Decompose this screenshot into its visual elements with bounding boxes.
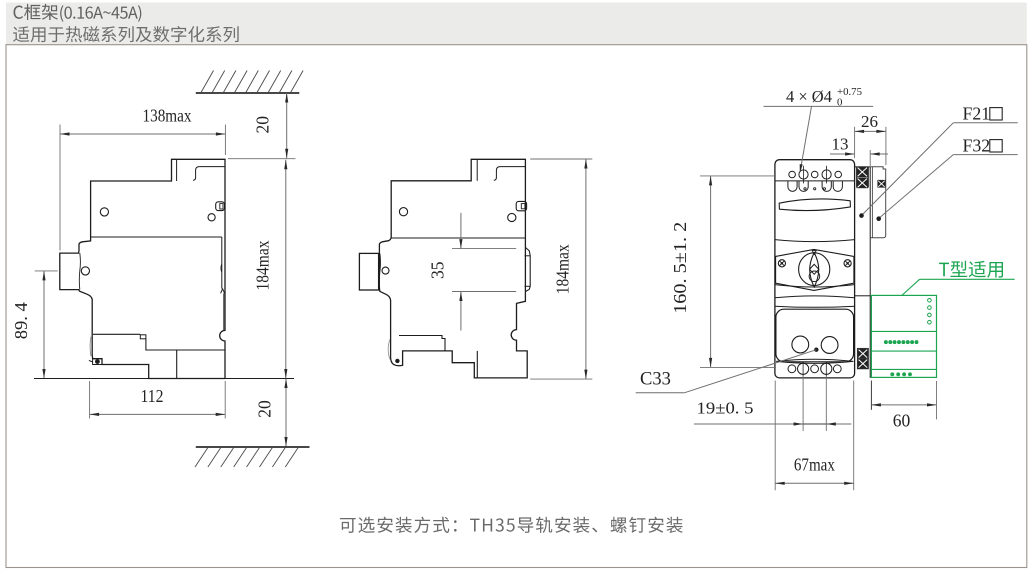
svg-text:13: 13 (832, 134, 849, 153)
svg-text:F21: F21 (963, 104, 991, 124)
svg-text:20: 20 (253, 116, 273, 134)
svg-text:184max: 184max (553, 244, 573, 294)
svg-text:20: 20 (255, 400, 275, 418)
svg-text:60: 60 (893, 411, 911, 431)
svg-text:0: 0 (837, 96, 842, 108)
svg-text:26: 26 (861, 112, 878, 131)
svg-text:4 × Ø4: 4 × Ø4 (786, 87, 832, 106)
svg-text:67max: 67max (794, 455, 835, 475)
svg-text:160. 5±1. 2: 160. 5±1. 2 (670, 222, 690, 314)
svg-text:89. 4: 89. 4 (11, 302, 31, 339)
svg-text:C33: C33 (640, 370, 671, 390)
svg-text:112: 112 (141, 386, 164, 406)
svg-text:F32: F32 (963, 136, 991, 156)
svg-text:19±0. 5: 19±0. 5 (697, 399, 754, 418)
svg-text:35: 35 (427, 261, 447, 279)
svg-text:138max: 138max (143, 106, 192, 126)
svg-text:184max: 184max (253, 240, 273, 290)
